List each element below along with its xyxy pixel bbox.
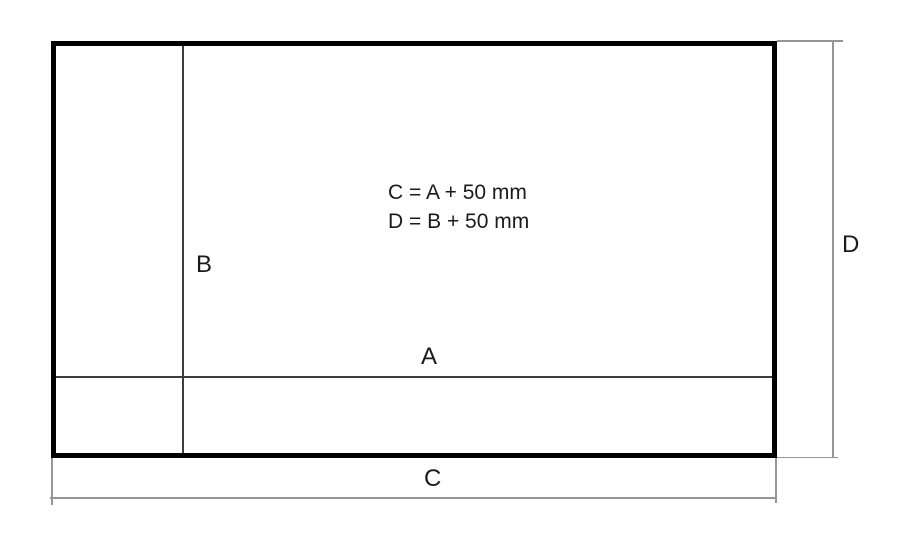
formula-block: C = A + 50 mm D = B + 50 mm bbox=[388, 178, 529, 236]
dimension-line-c bbox=[50, 497, 777, 499]
outer-rectangle bbox=[51, 41, 777, 458]
label-d: D bbox=[842, 233, 859, 257]
extension-line-c-right bbox=[775, 458, 777, 503]
extension-line-d-bottom bbox=[777, 457, 838, 459]
diagram-canvas: B A C D C = A + 50 mm D = B + 50 mm bbox=[0, 0, 900, 546]
label-b: B bbox=[196, 253, 212, 277]
inner-horizontal-line-a bbox=[56, 376, 772, 378]
label-c: C bbox=[424, 467, 441, 491]
formula-line-d: D = B + 50 mm bbox=[388, 207, 529, 236]
formula-line-c: C = A + 50 mm bbox=[388, 178, 529, 207]
dimension-line-d bbox=[832, 41, 834, 458]
label-a: A bbox=[421, 345, 437, 369]
inner-vertical-line-b bbox=[182, 46, 184, 453]
